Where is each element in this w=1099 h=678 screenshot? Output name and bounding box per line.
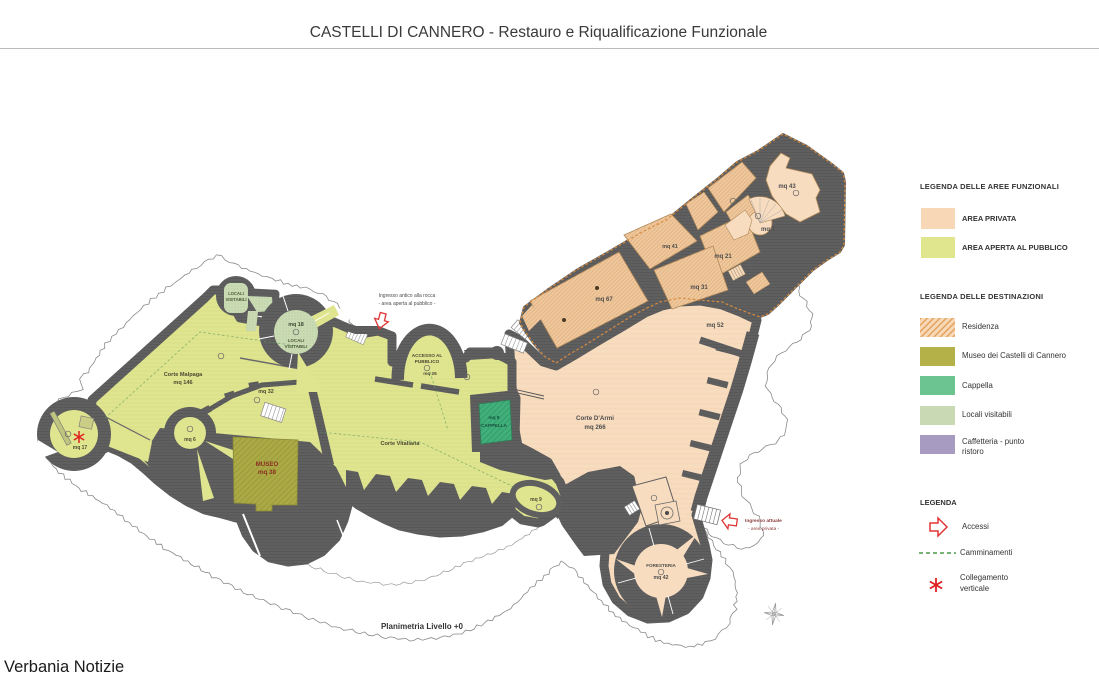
svg-text:mq 6: mq 6 [184,437,196,443]
svg-text:VISITABILI: VISITABILI [285,344,308,349]
svg-text:- area aperta al pubblico -: - area aperta al pubblico - [379,301,436,307]
svg-text:mq 17: mq 17 [73,445,88,451]
svg-text:mq 18: mq 18 [288,322,304,328]
svg-text:Corte D'Armi: Corte D'Armi [576,415,614,422]
svg-text:mq 9: mq 9 [530,497,542,503]
svg-text:Corte Vitaliana: Corte Vitaliana [380,441,420,447]
svg-text:mq 52: mq 52 [706,323,724,329]
svg-text:mq 7: mq 7 [761,227,776,233]
svg-text:mq 21: mq 21 [714,254,732,260]
svg-text:mq 31: mq 31 [690,285,708,291]
svg-text:PUBBLICO: PUBBLICO [415,359,440,364]
svg-text:mq 8: mq 8 [488,415,500,421]
svg-text:mq 32: mq 32 [258,389,274,395]
svg-text:mq 42: mq 42 [654,575,669,581]
svg-text:mq 266: mq 266 [584,424,606,431]
svg-text:CAPPELLA: CAPPELLA [481,423,507,429]
svg-text:mq 67: mq 67 [595,297,613,303]
svg-text:MUSEO: MUSEO [256,461,279,468]
svg-text:FORESTERIA: FORESTERIA [646,563,676,568]
svg-text:mq 38: mq 38 [258,469,276,476]
svg-text:Ingresso antico alla rocca: Ingresso antico alla rocca [379,293,436,299]
svg-text:Ingresso attuale: Ingresso attuale [745,518,782,524]
svg-text:mq 43: mq 43 [778,184,796,190]
svg-text:Corte Malpaga: Corte Malpaga [164,372,203,378]
svg-text:mq 26: mq 26 [423,371,437,376]
svg-text:LOCALI: LOCALI [288,338,305,343]
svg-text:ACCESSO AL: ACCESSO AL [412,353,443,358]
svg-text:mq 41: mq 41 [662,244,678,250]
svg-text:LOCALI: LOCALI [228,291,244,296]
svg-text:- area privata -: - area privata - [748,526,780,532]
svg-text:Planimetria Livello +0: Planimetria Livello +0 [381,622,464,631]
svg-text:VISITABILI: VISITABILI [225,297,246,302]
svg-text:mq 146: mq 146 [173,380,192,386]
